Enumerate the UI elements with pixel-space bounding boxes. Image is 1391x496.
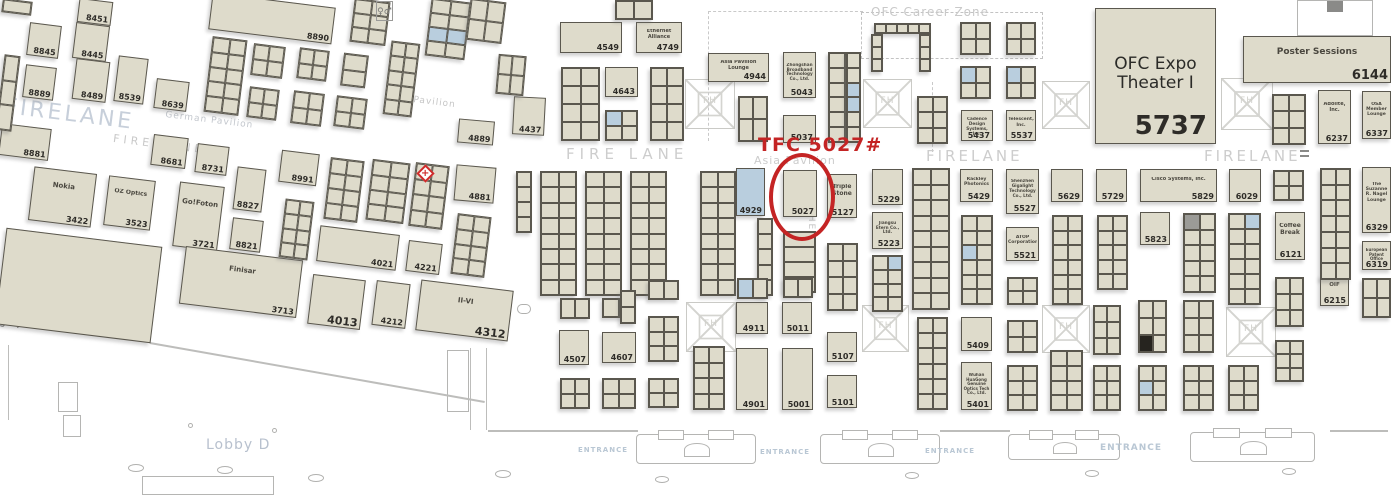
booth-cell[interactable]	[1273, 111, 1289, 127]
booth-cell[interactable]	[631, 264, 649, 279]
booth-cell[interactable]	[1336, 216, 1351, 232]
booth-cell[interactable]	[1008, 278, 1023, 291]
booth-6237[interactable]: Adolite, Inc.6237	[1318, 90, 1351, 144]
booth-cell[interactable]	[1139, 301, 1153, 318]
booth-cell[interactable]	[961, 39, 976, 55]
booth-cell[interactable]	[1053, 275, 1068, 290]
booth-cell[interactable]	[1363, 279, 1377, 298]
booth-cell[interactable]	[484, 21, 503, 43]
booth-cell[interactable]	[1153, 366, 1167, 381]
booth-cell[interactable]	[1094, 338, 1107, 354]
booth-cell[interactable]	[603, 379, 619, 394]
booth-cell[interactable]	[933, 379, 948, 394]
booth-cell[interactable]	[631, 249, 649, 264]
booth-cell[interactable]	[931, 185, 949, 201]
booth-cell[interactable]	[1139, 381, 1153, 396]
booth-5101[interactable]: 5101	[827, 375, 857, 408]
booth-cell[interactable]	[622, 111, 638, 126]
booth-cell[interactable]	[1229, 289, 1245, 304]
booth-cell[interactable]	[562, 86, 581, 104]
booth-5729[interactable]: 5729	[1096, 169, 1127, 202]
booth-cell[interactable]	[1053, 245, 1068, 260]
booth-cell[interactable]	[976, 67, 991, 83]
booth-cell[interactable]	[581, 104, 600, 122]
booth-cell[interactable]	[1007, 23, 1021, 39]
booth-cell[interactable]	[649, 249, 667, 264]
booth-cell[interactable]	[575, 394, 589, 409]
booth-cell[interactable]	[1051, 395, 1067, 410]
booth-cell[interactable]	[1184, 214, 1200, 230]
booth-cell[interactable]	[261, 104, 277, 120]
booth-cell[interactable]	[541, 218, 559, 233]
booth-cell[interactable]	[843, 261, 858, 278]
booth-cell[interactable]	[718, 203, 735, 218]
booth-cell[interactable]	[913, 247, 931, 263]
booth-4901[interactable]: 4901	[736, 348, 768, 410]
booth-cell[interactable]	[908, 24, 919, 33]
booth-cell[interactable]	[619, 394, 635, 409]
booth-cell[interactable]	[649, 264, 667, 279]
booth-cell[interactable]	[962, 289, 977, 304]
booth-cell[interactable]	[1139, 395, 1153, 410]
booth-cell[interactable]	[1184, 381, 1199, 396]
booth-cell[interactable]	[1321, 169, 1336, 185]
booth-cell[interactable]	[622, 126, 638, 141]
booth-cell[interactable]	[324, 203, 342, 220]
booth-cell[interactable]	[701, 218, 718, 233]
booth-cell[interactable]	[828, 277, 843, 294]
booth-cell[interactable]	[604, 218, 622, 233]
booth-cell[interactable]	[667, 104, 683, 122]
booth-cell[interactable]	[1377, 298, 1391, 317]
booth-cell[interactable]	[634, 1, 652, 19]
booth-cell[interactable]	[918, 97, 933, 112]
booth-cell[interactable]	[297, 215, 312, 231]
booth-cell[interactable]	[709, 347, 724, 363]
booth-cell[interactable]	[1290, 354, 1304, 367]
booth-cell[interactable]	[977, 275, 992, 290]
booth-cell[interactable]	[843, 244, 858, 261]
booth-cell[interactable]	[311, 65, 327, 81]
booth-8827[interactable]: 8827	[232, 166, 266, 212]
booth-cell[interactable]	[586, 172, 604, 187]
booth-8731[interactable]: 8731	[194, 143, 229, 176]
booth-cell[interactable]	[913, 262, 931, 278]
booth-cell[interactable]	[0, 104, 13, 130]
booth-cell[interactable]	[1153, 381, 1167, 396]
booth-cell[interactable]	[509, 75, 524, 95]
booth-cell[interactable]	[847, 83, 860, 98]
booth-cell[interactable]	[1094, 306, 1107, 322]
booth-cell[interactable]	[1245, 289, 1261, 304]
booth-6121[interactable]: Coffee Break6121	[1275, 212, 1305, 260]
booth-cell[interactable]	[1008, 395, 1023, 410]
booth-cell[interactable]	[931, 216, 949, 232]
booth-area[interactable]	[0, 228, 162, 343]
booth-cell[interactable]	[667, 68, 683, 86]
booth-5521[interactable]: ATOP Corporation5521	[1006, 227, 1039, 261]
booth-cell[interactable]	[664, 379, 679, 393]
booth-4549[interactable]: 4549	[560, 22, 622, 53]
booth-cell[interactable]	[399, 86, 414, 102]
booth-cell[interactable]	[1053, 231, 1068, 246]
booth-6144[interactable]: Poster Sessions6144	[1243, 36, 1391, 83]
booth-cell[interactable]	[931, 247, 949, 263]
booth-cell[interactable]	[1289, 111, 1305, 127]
booth-4607[interactable]: 4607	[602, 332, 636, 363]
booth-cell[interactable]	[1321, 216, 1336, 232]
booth-cell[interactable]	[977, 245, 992, 260]
booth-cell[interactable]	[977, 231, 992, 246]
booth-cell[interactable]	[559, 234, 577, 249]
booth-cell[interactable]	[1273, 128, 1289, 144]
booth-cell[interactable]	[619, 379, 635, 394]
booth-cell[interactable]	[1336, 263, 1351, 279]
booth-cell[interactable]	[1184, 395, 1199, 410]
booth-cell[interactable]	[933, 333, 948, 348]
booth-cell[interactable]	[709, 363, 724, 379]
booth-cell[interactable]	[784, 262, 815, 277]
booth-cell[interactable]	[221, 98, 239, 115]
booth-cell[interactable]	[559, 218, 577, 233]
booth-cell[interactable]	[1139, 318, 1153, 335]
booth-cell[interactable]	[664, 393, 679, 407]
booth-cell[interactable]	[1021, 67, 1035, 83]
booth-cell[interactable]	[1113, 231, 1128, 246]
booth-cell[interactable]	[561, 299, 575, 318]
booth-cell[interactable]	[694, 378, 709, 394]
booth-cell[interactable]	[631, 234, 649, 249]
booth-cell[interactable]	[1276, 341, 1290, 354]
booth-cell[interactable]	[649, 379, 664, 393]
booth-cell[interactable]	[367, 29, 386, 45]
booth-cell[interactable]	[1245, 274, 1261, 289]
booth-cell[interactable]	[541, 187, 559, 202]
booth-4944[interactable]: Asia Pavilion Lounge4944	[708, 53, 769, 82]
booth-cell[interactable]	[739, 119, 753, 141]
booth-cell[interactable]	[962, 275, 977, 290]
booth-cell[interactable]	[976, 83, 991, 99]
booth-cell[interactable]	[1245, 244, 1261, 259]
booth-cell[interactable]	[931, 200, 949, 216]
booth-cell[interactable]	[1008, 337, 1023, 353]
booth-cell[interactable]	[517, 187, 531, 202]
booth-cell[interactable]	[1023, 366, 1038, 381]
booth-cell[interactable]	[1067, 395, 1083, 410]
booth-cell[interactable]	[918, 394, 933, 409]
booth-cell[interactable]	[918, 348, 933, 363]
booth-cell[interactable]	[1199, 335, 1214, 352]
booth-cell[interactable]	[709, 394, 724, 410]
booth-cell[interactable]	[962, 245, 977, 260]
booth-cell[interactable]	[293, 244, 308, 260]
booth-cell[interactable]	[340, 205, 358, 222]
booth-cell[interactable]	[1276, 368, 1290, 381]
booth-cell[interactable]	[931, 278, 949, 294]
booth-cell[interactable]	[517, 217, 531, 232]
booth-cell[interactable]	[1094, 322, 1107, 338]
booth-cell[interactable]	[581, 122, 600, 140]
booth-cell[interactable]	[1107, 381, 1120, 396]
booth-cell[interactable]	[1363, 298, 1377, 317]
booth-cell[interactable]	[1051, 351, 1067, 366]
booth-cell[interactable]	[306, 109, 322, 126]
booth-cell[interactable]	[667, 122, 683, 140]
booth-5043[interactable]: Zhongshan Broadband Technology Co., Ltd.…	[783, 52, 816, 98]
booth-cell[interactable]	[1153, 395, 1167, 410]
booth-cell[interactable]	[559, 249, 577, 264]
booth-cell[interactable]	[933, 394, 948, 409]
booth-cell[interactable]	[918, 318, 933, 333]
booth-cell[interactable]	[308, 93, 324, 110]
booth-cell[interactable]	[694, 394, 709, 410]
booth-cell[interactable]	[758, 219, 772, 234]
booth-cell[interactable]	[933, 112, 948, 127]
booth-cell[interactable]	[913, 216, 931, 232]
booth-cell[interactable]	[918, 364, 933, 379]
booth-cell[interactable]	[1200, 230, 1216, 246]
booth-cell[interactable]	[1051, 366, 1067, 381]
booth-cell[interactable]	[829, 112, 845, 127]
booth-cell[interactable]	[1098, 274, 1113, 289]
booth-cell[interactable]	[1008, 381, 1023, 396]
booth-cell[interactable]	[758, 249, 772, 264]
booth-cell[interactable]	[1184, 245, 1200, 261]
booth-cell[interactable]	[1290, 278, 1304, 294]
booth-cell[interactable]	[1184, 301, 1199, 318]
booth-cell[interactable]	[586, 264, 604, 279]
booth-cell[interactable]	[1276, 278, 1290, 294]
booth-cell[interactable]	[1244, 395, 1259, 410]
booth-cell[interactable]	[1244, 366, 1259, 381]
booth-cell[interactable]	[913, 231, 931, 247]
booth-4212[interactable]: 4212	[371, 280, 410, 329]
booth-cell[interactable]	[575, 379, 589, 394]
booth-cell[interactable]	[1200, 214, 1216, 230]
booth-cell[interactable]	[1184, 230, 1200, 246]
booth-cell[interactable]	[753, 97, 767, 119]
booth-cell[interactable]	[404, 43, 419, 59]
booth-cell[interactable]	[1067, 366, 1083, 381]
booth-cell[interactable]	[452, 258, 470, 275]
booth-cell[interactable]	[1098, 245, 1113, 260]
booth-4437[interactable]: 4437	[512, 96, 546, 136]
booth-cell[interactable]	[562, 122, 581, 140]
booth-4881[interactable]: 4881	[454, 164, 497, 203]
booth-cell[interactable]	[1139, 366, 1153, 381]
booth-cell[interactable]	[1153, 318, 1167, 335]
booth-cell[interactable]	[718, 234, 735, 249]
booth-cell[interactable]	[541, 249, 559, 264]
booth-cell[interactable]	[1068, 216, 1083, 231]
booth-cell[interactable]	[931, 169, 949, 185]
booth-5001[interactable]: 5001	[782, 348, 813, 410]
booth-cell[interactable]	[651, 86, 667, 104]
booth-cell[interactable]	[1229, 259, 1245, 274]
booth-cell[interactable]	[976, 23, 991, 39]
booth-cell[interactable]	[829, 83, 845, 98]
booth-cell[interactable]	[586, 234, 604, 249]
booth-4749[interactable]: Ethernet Alliance4749	[636, 22, 682, 53]
booth-cell[interactable]	[933, 128, 948, 143]
booth-cell[interactable]	[1336, 200, 1351, 216]
booth-cell[interactable]	[586, 280, 604, 295]
booth-cell[interactable]	[798, 279, 812, 297]
booth-cell[interactable]	[1229, 274, 1245, 289]
booth-cell[interactable]	[266, 61, 283, 78]
booth-cell[interactable]	[919, 24, 930, 33]
booth-cell[interactable]	[313, 50, 329, 66]
booth-cell[interactable]	[559, 264, 577, 279]
booth-cell[interactable]	[2, 0, 31, 15]
booth-5629[interactable]: 5629	[1051, 169, 1083, 202]
booth-cell[interactable]	[1274, 171, 1289, 186]
booth-cell[interactable]	[1336, 185, 1351, 201]
booth-cell[interactable]	[1098, 216, 1113, 231]
booth-4312[interactable]: II-VI4312	[415, 280, 514, 342]
booth-8845[interactable]: 8845	[26, 22, 62, 59]
booth-cell[interactable]	[397, 100, 412, 116]
booth-5737[interactable]: OFC Expo Theater I5737	[1095, 8, 1216, 144]
booth-cell[interactable]	[1008, 321, 1023, 337]
booth-cell[interactable]	[1107, 395, 1120, 410]
booth-cell[interactable]	[559, 280, 577, 295]
booth-cell[interactable]	[1321, 248, 1336, 264]
booth-cell[interactable]	[1199, 381, 1214, 396]
booth-cell[interactable]	[1289, 186, 1304, 201]
booth-cell[interactable]	[603, 299, 619, 317]
booth-cell[interactable]	[829, 53, 845, 68]
booth-cell[interactable]	[1023, 291, 1038, 304]
booth-cell[interactable]	[1321, 200, 1336, 216]
booth-cell[interactable]	[1321, 185, 1336, 201]
booth-cell[interactable]	[664, 332, 679, 347]
booth-4889[interactable]: 4889	[457, 118, 495, 145]
booth-cell[interactable]	[0, 80, 16, 106]
booth-cell[interactable]	[541, 172, 559, 187]
booth-cell[interactable]	[631, 172, 649, 187]
booth-cell[interactable]	[649, 317, 664, 332]
booth-5401[interactable]: Wuhan HuaGong Genuine Optics Tech Co., L…	[961, 362, 992, 410]
booth-cell[interactable]	[888, 256, 903, 270]
booth-cell[interactable]	[511, 56, 526, 76]
booth-cell[interactable]	[1053, 260, 1068, 275]
booth-cell[interactable]	[1245, 229, 1261, 244]
booth-cell[interactable]	[575, 299, 589, 318]
booth-cell[interactable]	[1023, 395, 1038, 410]
booth-cell[interactable]	[586, 249, 604, 264]
booth-cell[interactable]	[1245, 259, 1261, 274]
booth-4221[interactable]: 4221	[405, 240, 443, 275]
booth-cell[interactable]	[1184, 335, 1199, 352]
booth-cell[interactable]	[962, 231, 977, 246]
booth-cell[interactable]	[1068, 289, 1083, 304]
booth-cell[interactable]	[604, 249, 622, 264]
booth-cell[interactable]	[1184, 318, 1199, 335]
booth-cell[interactable]	[349, 113, 365, 129]
booth-cell[interactable]	[1290, 341, 1304, 354]
booth-cell[interactable]	[1244, 381, 1259, 396]
booth-cell[interactable]	[1153, 335, 1167, 352]
booth-cell[interactable]	[559, 172, 577, 187]
booth-cell[interactable]	[1336, 169, 1351, 185]
booth-cell[interactable]	[1229, 395, 1244, 410]
booth-cell[interactable]	[1199, 395, 1214, 410]
booth-cell[interactable]	[1094, 395, 1107, 410]
booth-cell[interactable]	[402, 58, 417, 74]
booth-cell[interactable]	[931, 231, 949, 247]
booth-cell[interactable]	[872, 47, 882, 59]
booth-cell[interactable]	[1021, 23, 1035, 39]
booth-cell[interactable]	[784, 247, 815, 262]
booth-cell[interactable]	[1068, 245, 1083, 260]
booth-cell[interactable]	[341, 69, 366, 87]
booth-cell[interactable]	[933, 348, 948, 363]
booth-cell[interactable]	[649, 234, 667, 249]
booth-cell[interactable]	[1098, 260, 1113, 275]
booth-4929[interactable]: 4929	[736, 168, 765, 216]
booth-cell[interactable]	[873, 284, 888, 298]
booth-cell[interactable]	[649, 187, 667, 202]
booth-cell[interactable]	[1023, 337, 1038, 353]
booth-cell[interactable]	[694, 347, 709, 363]
booth-8681[interactable]: 8681	[150, 134, 189, 169]
booth-cell[interactable]	[847, 68, 860, 83]
booth-cell[interactable]	[1200, 261, 1216, 277]
booth-cell[interactable]	[1053, 289, 1068, 304]
booth-cell[interactable]	[562, 68, 581, 86]
booth-cell[interactable]	[918, 112, 933, 127]
booth-cell[interactable]	[604, 203, 622, 218]
booth-cell[interactable]	[701, 172, 718, 187]
booth-cell[interactable]	[425, 211, 443, 228]
booth-cell[interactable]	[718, 172, 735, 187]
booth-cell[interactable]	[1098, 231, 1113, 246]
booth-5107[interactable]: 5107	[827, 332, 857, 362]
booth-6337[interactable]: OSA Member Lounge6337	[1362, 91, 1391, 139]
booth-cell[interactable]	[1113, 216, 1128, 231]
booth-cell[interactable]	[367, 204, 387, 221]
booth-cell[interactable]	[933, 97, 948, 112]
booth-cell[interactable]	[1229, 381, 1244, 396]
booth-5829[interactable]: Cisco Systems, Inc.5829	[1140, 169, 1217, 202]
booth-cell[interactable]	[561, 379, 575, 394]
booth-3721[interactable]: Go!Foton3721	[172, 182, 225, 252]
booth-cell[interactable]	[581, 68, 600, 86]
booth-cell[interactable]	[920, 47, 930, 59]
booth-cell[interactable]	[1321, 232, 1336, 248]
booth-5229[interactable]: 5229	[872, 169, 903, 205]
booth-4911[interactable]: 4911	[736, 302, 768, 334]
booth-cell[interactable]	[651, 104, 667, 122]
booth-cell[interactable]	[1113, 245, 1128, 260]
booth-cell[interactable]	[649, 332, 664, 347]
booth-4013[interactable]: 4013	[307, 274, 366, 330]
booth-cell[interactable]	[586, 203, 604, 218]
booth-6329[interactable]: The Suzanne R. Nagel Lounge6329	[1362, 167, 1391, 233]
booth-8539[interactable]: 8539	[113, 55, 148, 104]
booth-5437[interactable]: Cadence Design Systems, Inc.5437	[961, 110, 993, 141]
booth-cell[interactable]	[1051, 381, 1067, 396]
booth-cell[interactable]	[541, 280, 559, 295]
booth-cell[interactable]	[1007, 67, 1021, 83]
booth-4643[interactable]: 4643	[605, 67, 638, 97]
booth-8639[interactable]: 8639	[153, 78, 189, 112]
booth-cell[interactable]	[1107, 366, 1120, 381]
booth-6319[interactable]: European Patent Office6319	[1362, 241, 1391, 270]
booth-cell[interactable]	[828, 244, 843, 261]
booth-cell[interactable]	[873, 256, 888, 270]
